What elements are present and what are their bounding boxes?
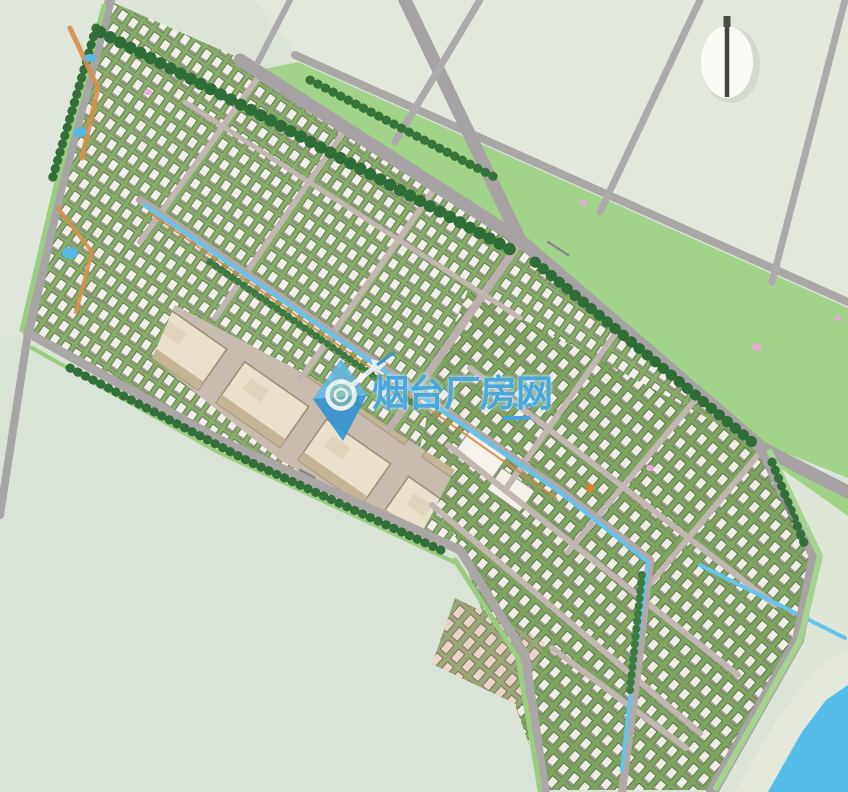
pink-tree <box>144 89 152 95</box>
map-canvas: 烟台厂房网 <box>0 0 848 792</box>
pond <box>62 247 78 259</box>
pink-tree <box>752 343 762 351</box>
pink-tree <box>579 200 587 206</box>
map-layers <box>0 0 848 792</box>
pond <box>84 54 96 62</box>
pink-tree <box>646 465 654 471</box>
site-plan-map <box>0 0 848 792</box>
orange-marker <box>586 484 594 492</box>
pond <box>73 127 87 137</box>
pink-tree <box>834 315 842 321</box>
